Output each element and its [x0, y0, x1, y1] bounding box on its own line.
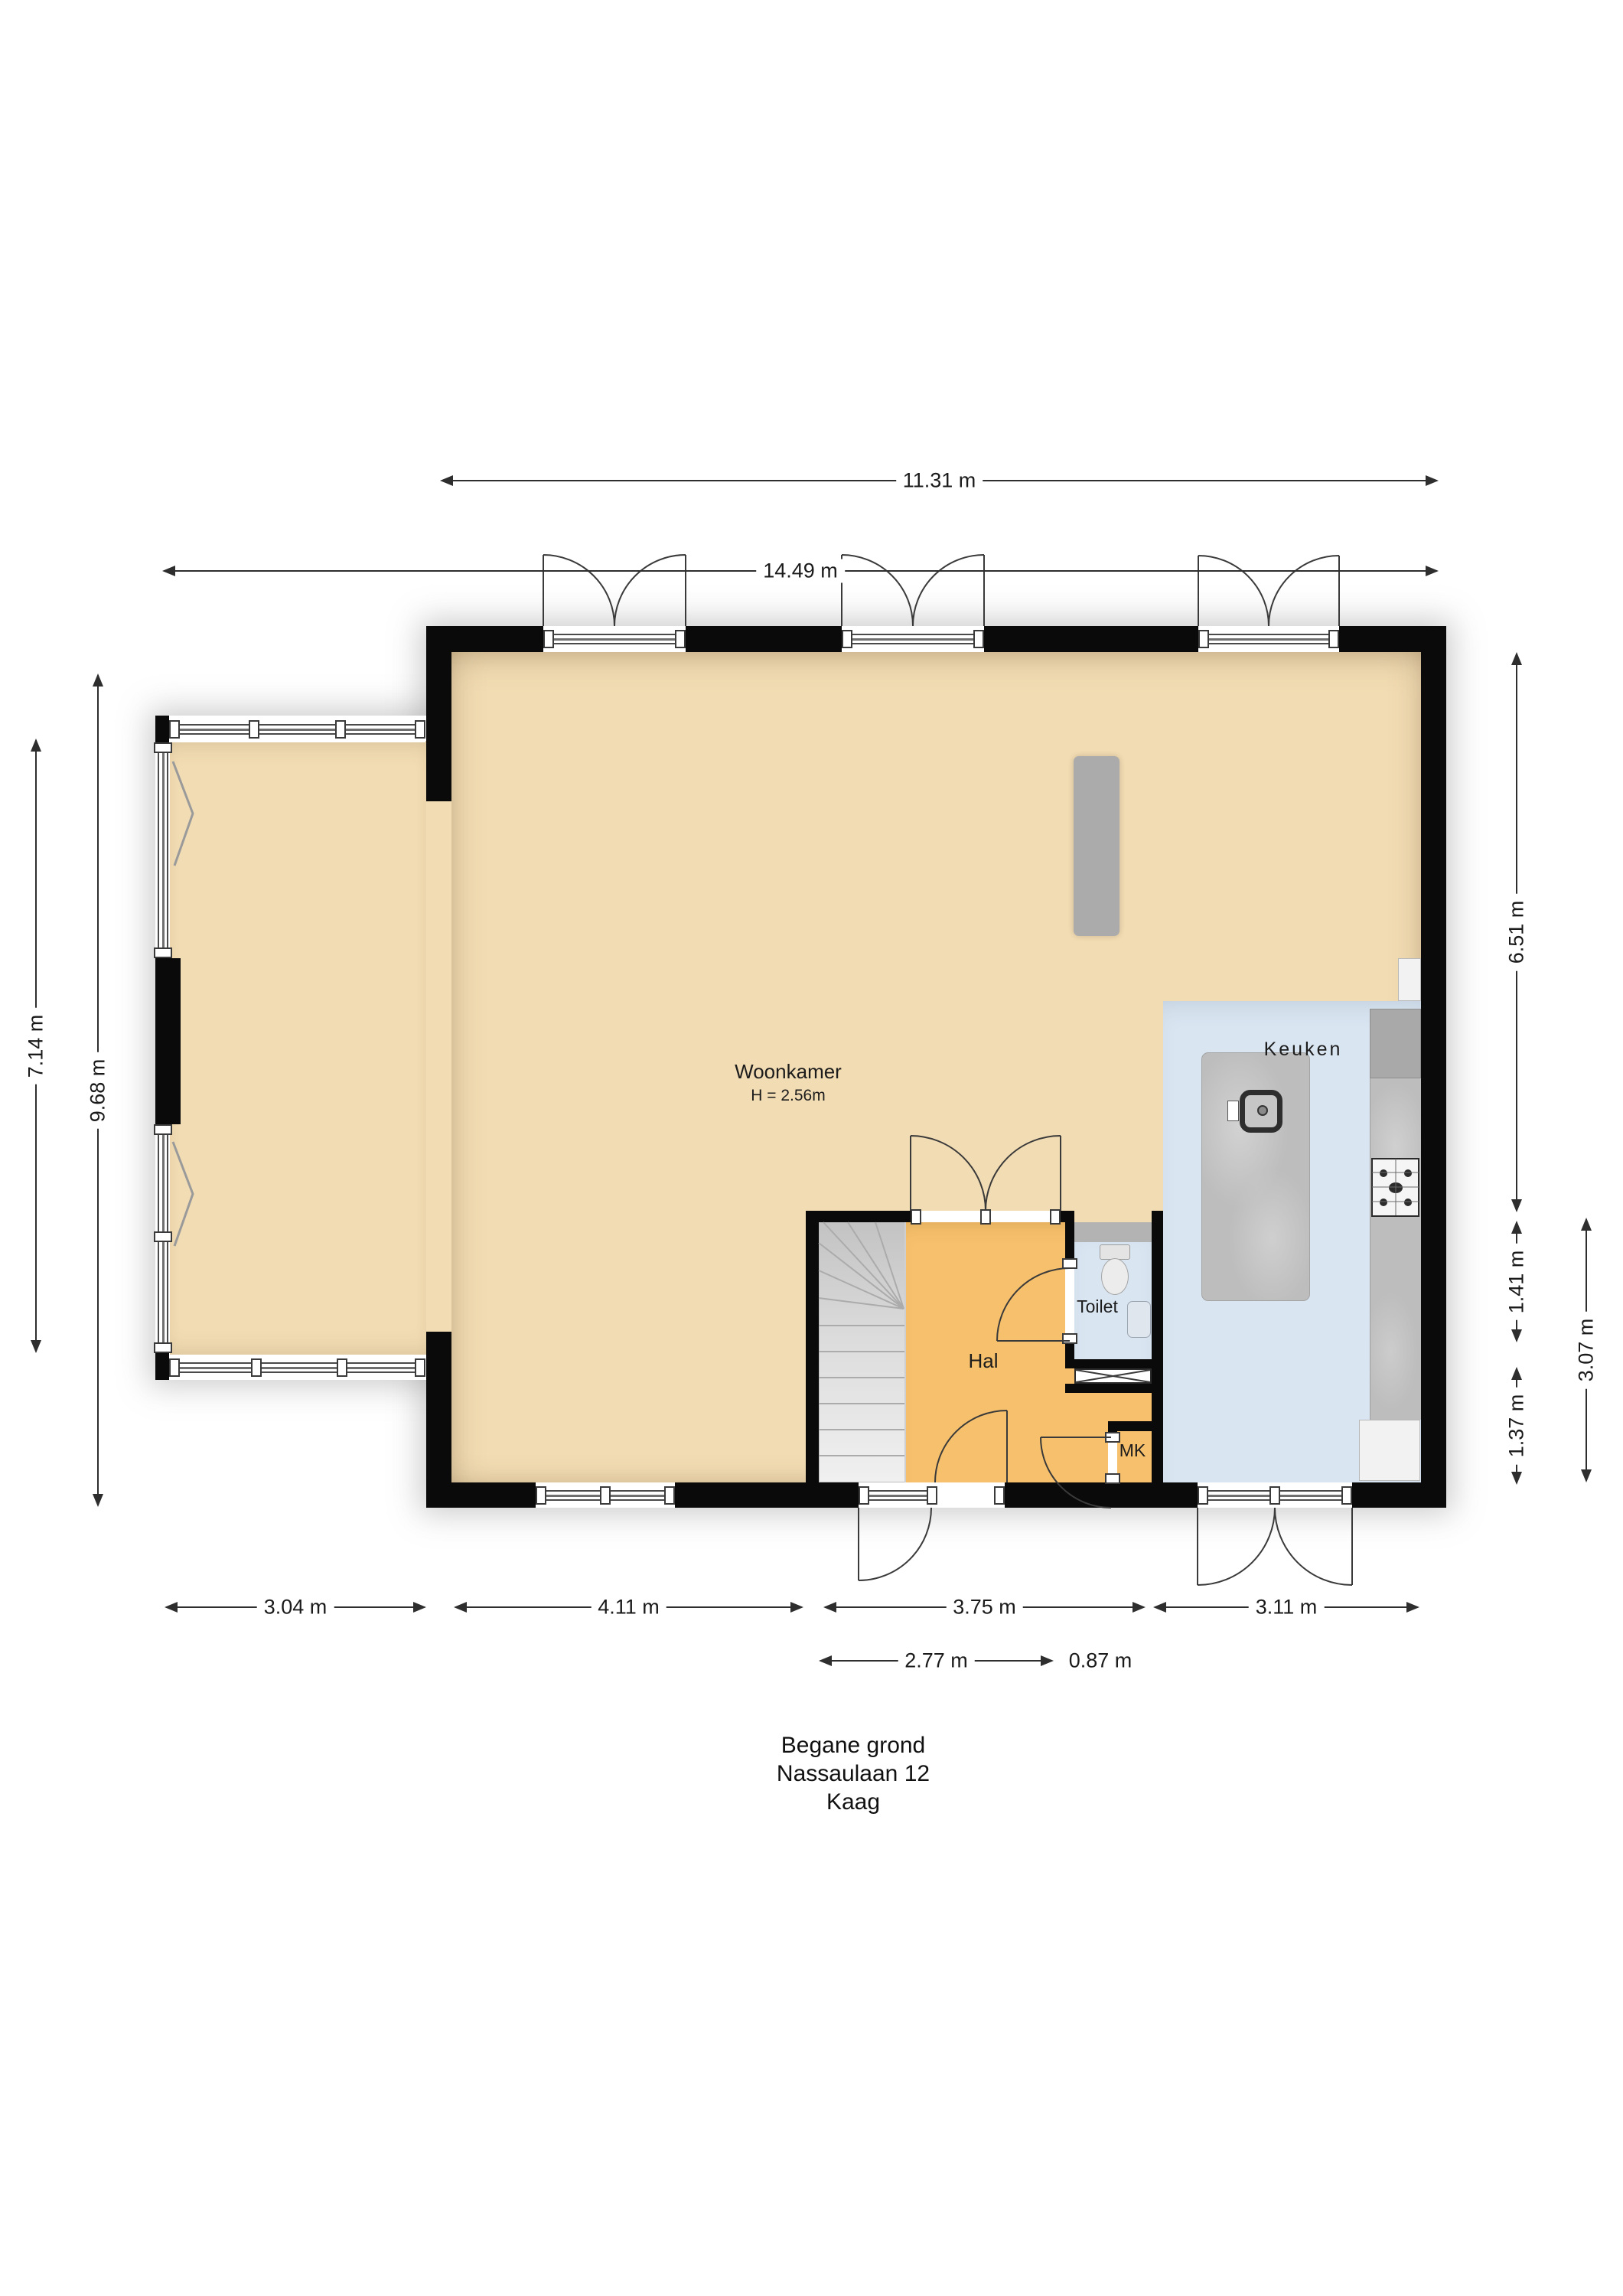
window-band-ext-left-lower: [155, 1124, 170, 1353]
dimension-top-1449: 14.49 m: [162, 560, 1439, 582]
door-post: [1105, 1473, 1120, 1484]
room-ceiling-height: H = 2.56m: [673, 1087, 903, 1105]
window-post: [154, 1342, 172, 1353]
door-post: [1198, 630, 1209, 648]
window-post: [154, 1124, 172, 1135]
wall-below-duct: [1065, 1384, 1163, 1393]
chimney-block: [155, 958, 181, 1124]
door-post: [842, 630, 852, 648]
dimension-right-137: 1.37 m: [1506, 1367, 1527, 1485]
door-post: [1062, 1258, 1077, 1269]
wall-left-upper: [426, 626, 451, 801]
window-band-ext-top: [169, 716, 425, 742]
dimension-left-714: 7.14 m: [25, 739, 47, 1353]
dimension-bottom-277: 2.77 m: [819, 1650, 1054, 1671]
wall-toilet-south: [1065, 1359, 1163, 1368]
dimension-bottom-411: 4.11 m: [454, 1596, 803, 1618]
door-post: [543, 630, 554, 648]
dimension-right-307: 3.07 m: [1576, 1218, 1597, 1482]
door-hal-woonkamer: [911, 1211, 1061, 1222]
door-post: [1328, 630, 1339, 648]
door-post: [980, 1209, 991, 1225]
window-post: [154, 1231, 172, 1242]
staircase: [819, 1222, 905, 1482]
door-post: [859, 1486, 869, 1505]
dimension-left-968: 9.68 m: [87, 673, 109, 1507]
door-top-1: [543, 626, 686, 652]
window-post: [415, 720, 425, 739]
kitchen-counter: [1370, 1078, 1421, 1420]
dimension-bottom-304: 3.04 m: [165, 1596, 426, 1618]
door-threshold: [845, 634, 981, 644]
room-label-keuken: Keuken: [1227, 1039, 1380, 1061]
door-post: [1198, 1486, 1208, 1505]
kitchen-sink: [1240, 1090, 1282, 1133]
window-post: [335, 720, 346, 739]
room-label-hal: Hal: [945, 1349, 1022, 1373]
door-post: [1050, 1209, 1061, 1225]
window-glazing: [158, 745, 168, 955]
wall-stairs-west: [806, 1211, 819, 1508]
door-post: [994, 1486, 1005, 1505]
floor-plan-canvas: Woonkamer H = 2.56m Keuken Hal Toilet MK…: [0, 0, 1623, 2296]
wall-left-lower: [426, 1332, 451, 1508]
dishwasher: [1359, 1420, 1420, 1481]
faucet-handle: [1227, 1101, 1239, 1121]
window-post: [154, 947, 172, 958]
title-floor: Begane grond: [700, 1731, 1006, 1760]
door-top-2: [842, 626, 984, 652]
door-keuken-exterior: [1198, 1482, 1352, 1508]
toilet-sink: [1127, 1301, 1151, 1338]
window-post: [664, 1486, 675, 1505]
dimension-bottom-311: 3.11 m: [1153, 1596, 1419, 1618]
title-block: Begane grond Nassaulaan 12 Kaag: [700, 1731, 1006, 1816]
wall-ext-corner-top: [155, 716, 169, 742]
door-post: [675, 630, 686, 648]
storage-cabinet: [1074, 756, 1119, 936]
window-band-ext-bottom: [169, 1355, 425, 1380]
door-top-3: [1198, 626, 1339, 652]
window-post: [169, 1358, 180, 1377]
dimension-bottom-087: 0.87 m: [1063, 1650, 1138, 1671]
dimension-right-141: 1.41 m: [1506, 1221, 1527, 1342]
wall-ext-corner-bottom: [155, 1353, 169, 1380]
window-post: [337, 1358, 347, 1377]
window-post: [169, 720, 180, 739]
window-glazing: [172, 724, 422, 735]
dimension-top-1131: 11.31 m: [440, 470, 1439, 491]
dimension-bottom-375: 3.75 m: [823, 1596, 1146, 1618]
wall-mk-north: [1108, 1421, 1163, 1431]
front-door: [859, 1482, 1005, 1508]
wall-right: [1421, 626, 1446, 1508]
door-post: [1062, 1333, 1077, 1344]
woonkamer-label-block: Woonkamer H = 2.56m: [673, 1060, 903, 1105]
counter-end-panel: [1398, 958, 1421, 1001]
wall-keuken-west: [1152, 1211, 1163, 1508]
room-label-mk: MK: [1110, 1440, 1155, 1461]
door-post: [1341, 1486, 1352, 1505]
window-post: [600, 1486, 611, 1505]
title-city: Kaag: [700, 1788, 1006, 1816]
sidelight-glazing: [863, 1490, 929, 1501]
toilet-bowl: [1101, 1258, 1129, 1295]
room-label-toilet: Toilet: [1067, 1296, 1128, 1317]
window-post: [154, 742, 172, 753]
woonkamer-floor-extension: [170, 741, 426, 1355]
door-post: [1269, 1486, 1280, 1505]
door-post: [927, 1486, 937, 1505]
door-post: [911, 1209, 921, 1225]
door-threshold: [546, 634, 683, 644]
toilet-shelf: [1074, 1222, 1152, 1242]
door-post: [973, 630, 984, 648]
window-post: [415, 1358, 425, 1377]
window-post: [251, 1358, 262, 1377]
duct-shaft: [1074, 1368, 1152, 1384]
window-post: [249, 720, 259, 739]
room-label-woonkamer: Woonkamer: [673, 1060, 903, 1084]
dimension-right-651: 6.51 m: [1506, 652, 1527, 1212]
woonkamer-floor-gap: [426, 801, 451, 1332]
stove-hob: [1371, 1158, 1419, 1217]
window-bottom: [536, 1482, 675, 1508]
window-band-ext-left-upper: [155, 742, 170, 958]
door-threshold: [1201, 634, 1336, 644]
toilet-cistern: [1100, 1244, 1130, 1260]
window-glazing: [172, 1362, 422, 1373]
window-post: [536, 1486, 546, 1505]
title-street: Nassaulaan 12: [700, 1760, 1006, 1788]
